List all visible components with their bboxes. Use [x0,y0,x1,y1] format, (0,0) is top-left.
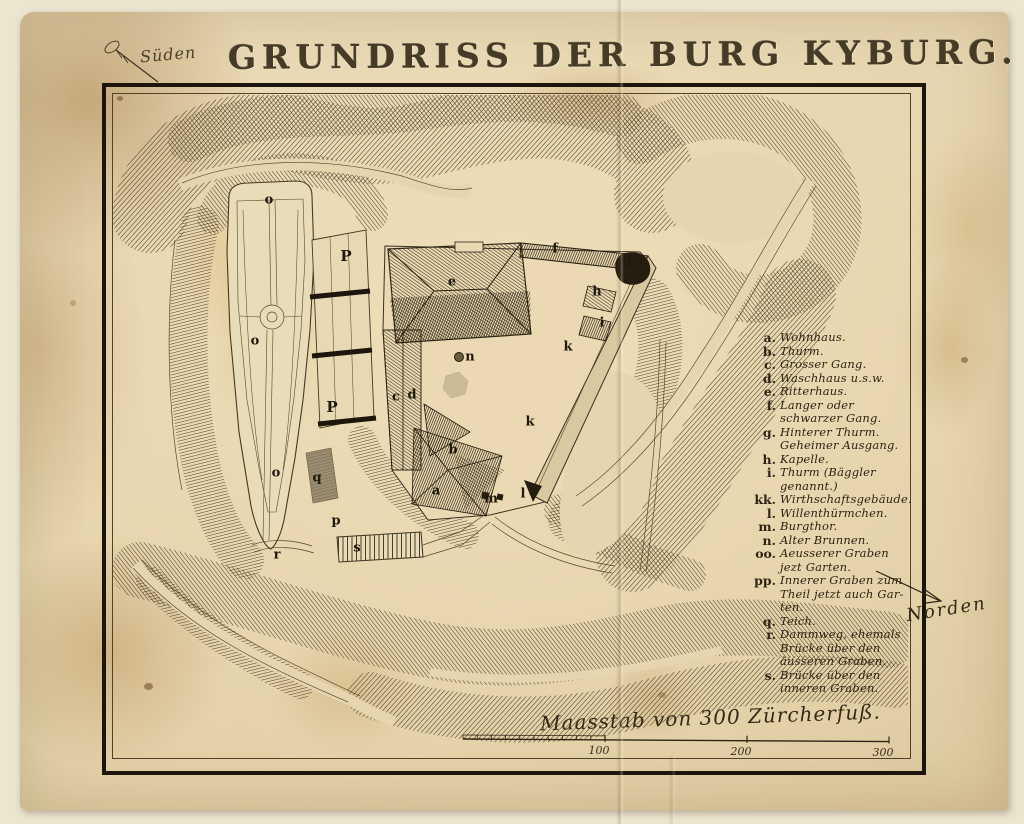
legend-key: c. [750,358,780,372]
legend-key: f. [750,399,780,413]
legend-key: a. [750,331,780,345]
stain-speck [961,357,968,363]
legend-text: Thurm (Bägglergenannt.) [780,466,876,493]
legend-key: r. [750,628,780,642]
legend-entry: f.Langer oderschwarzer Gang. [750,399,918,426]
legend-text: Brücke über deninneren Graben. [780,669,881,696]
legend-text: Innerer Graben zumTheil jetzt auch Gar-t… [780,574,904,615]
scanned-map-page: GRUNDRISS DER BURG KYBURG. Süden a.Wohnh… [0,0,1024,824]
legend-text: Kapelle. [780,453,829,467]
legend-key: g. [750,426,780,440]
legend-text: Grosser Gang. [780,358,866,372]
legend-entry: d.Waschhaus u.s.w. [750,372,918,386]
legend-entry: l.Willenthürmchen. [750,507,918,521]
legend-text: Teich. [780,615,816,629]
legend-entry: oo.Aeusserer Grabenjezt Garten. [750,547,918,574]
legend-key: s. [750,669,780,683]
legend-text: Aeusserer Grabenjezt Garten. [780,547,889,574]
legend-text: Ritterhaus. [780,385,847,399]
legend-text: Dammweg, ehemalsBrücke über denäusseren … [780,628,901,669]
legend-text: Wohnhaus. [780,331,846,345]
legend-entry: kk.Wirthschaftsgebäude. [750,493,918,507]
legend-text: Burgthor. [780,520,837,534]
legend-entry: m.Burgthor. [750,520,918,534]
legend-entry: i.Thurm (Bägglergenannt.) [750,466,918,493]
map-title: GRUNDRISS DER BURG KYBURG. [228,34,804,77]
legend-entry: n.Alter Brunnen. [750,534,918,548]
legend-entry: h.Kapelle. [750,453,918,467]
legend-text: Thurm. [780,345,824,359]
legend-key: e. [750,385,780,399]
legend-key: l. [750,507,780,521]
legend-entry: q.Teich. [750,615,918,629]
legend-text: Willenthürmchen. [780,507,888,521]
legend-key: i. [750,466,780,480]
legend-entry: s.Brücke über deninneren Graben. [750,669,918,696]
legend-text: Langer oderschwarzer Gang. [780,399,881,426]
legend-key: d. [750,372,780,386]
legend-key: pp. [750,574,780,588]
legend: a.Wohnhaus.b.Thurm.c.Grosser Gang.d.Wasc… [750,331,918,696]
legend-key: h. [750,453,780,467]
stain-speck [70,300,76,306]
legend-key: oo. [750,547,780,561]
legend-key: n. [750,534,780,548]
legend-entry: g.Hinterer Thurm.Geheimer Ausgang. [750,426,918,453]
legend-key: b. [750,345,780,359]
legend-key: m. [750,520,780,534]
legend-entry: r.Dammweg, ehemalsBrücke über denäussere… [750,628,918,669]
legend-text: Waschhaus u.s.w. [780,372,885,386]
legend-key: q. [750,615,780,629]
legend-entry: c.Grosser Gang. [750,358,918,372]
legend-text: Wirthschaftsgebäude. [780,493,912,507]
legend-key: kk. [750,493,780,507]
legend-entry: e.Ritterhaus. [750,385,918,399]
legend-entry: a.Wohnhaus. [750,331,918,345]
legend-entry: pp.Innerer Graben zumTheil jetzt auch Ga… [750,574,918,615]
legend-text: Alter Brunnen. [780,534,869,548]
legend-entry: b.Thurm. [750,345,918,359]
legend-text: Hinterer Thurm.Geheimer Ausgang. [780,426,898,453]
